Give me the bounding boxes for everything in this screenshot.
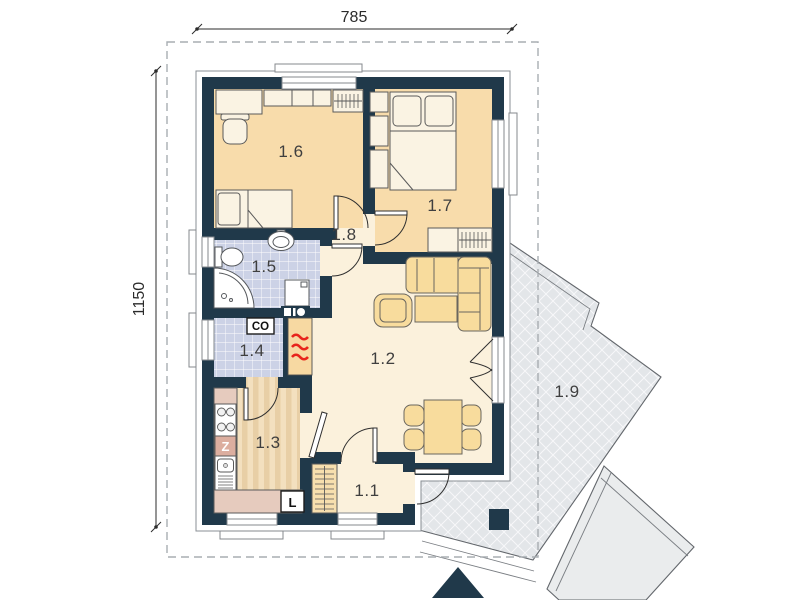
nightstand [370, 92, 388, 112]
hall-wardrobe [312, 464, 337, 513]
stove [215, 404, 236, 436]
label-room-1-1: 1.1 [354, 481, 379, 500]
kitchen-sink [215, 456, 236, 490]
label-room-1-8: 1.8 [331, 225, 356, 244]
floor-plan-page: 785 1150 [0, 0, 801, 600]
dimension-top-label: 785 [341, 9, 368, 26]
svg-text:L: L [289, 495, 297, 510]
dimension-side-label: 1150 [131, 282, 148, 317]
label-room-1-6: 1.6 [278, 142, 303, 161]
armchair [374, 294, 412, 327]
sink-block: Z [215, 436, 236, 456]
boiler-marker: CO [247, 318, 274, 334]
desk [216, 90, 262, 114]
window-sill-east [509, 113, 517, 195]
door-opening-1-5 [320, 246, 332, 276]
dining-table [424, 400, 462, 454]
door-opening-1-1 [341, 452, 375, 464]
dimension-top: 785 [192, 9, 517, 34]
door-opening-entrance [403, 472, 415, 504]
window-sill-kitchen [220, 531, 283, 539]
washing-machine [285, 280, 309, 306]
single-bed [216, 190, 292, 228]
fridge-marker: L [281, 491, 304, 512]
floor-plan-canvas: 785 1150 [0, 0, 801, 600]
label-room-1-4: 1.4 [239, 341, 264, 360]
nightstand [370, 116, 388, 146]
entrance-arrow-icon [432, 567, 484, 598]
dining-chair [404, 429, 424, 450]
svg-text:CO: CO [252, 321, 269, 333]
window-sill-bathroom [189, 230, 196, 274]
wardrobe-1-7 [428, 228, 492, 252]
chimney-block [281, 306, 310, 318]
dining-chair [404, 405, 424, 426]
porch-column [489, 509, 509, 530]
dresser [264, 90, 331, 106]
door-opening-1-4 [246, 377, 278, 388]
label-room-1-9: 1.9 [554, 382, 579, 401]
fireplace [288, 318, 312, 375]
window-sill-hall [331, 531, 384, 539]
desk-chair [223, 119, 247, 144]
label-room-1-3: 1.3 [255, 433, 280, 452]
svg-text:Z: Z [222, 439, 230, 454]
door-opening-1-7 [363, 214, 375, 246]
window-sill-north [275, 64, 362, 72]
coffee-table [415, 296, 457, 322]
dining-chair [461, 429, 481, 450]
nightstand [370, 150, 388, 188]
dimension-side: 1150 [131, 66, 161, 532]
double-bed [390, 92, 456, 190]
window-sill-boiler [189, 313, 196, 367]
dining-chair [461, 405, 481, 426]
wardrobe-1-6 [333, 90, 363, 112]
building: CO [189, 64, 517, 539]
label-room-1-2: 1.2 [370, 349, 395, 368]
toilet [221, 248, 243, 266]
label-room-1-5: 1.5 [251, 257, 276, 276]
label-room-1-7: 1.7 [427, 196, 452, 215]
